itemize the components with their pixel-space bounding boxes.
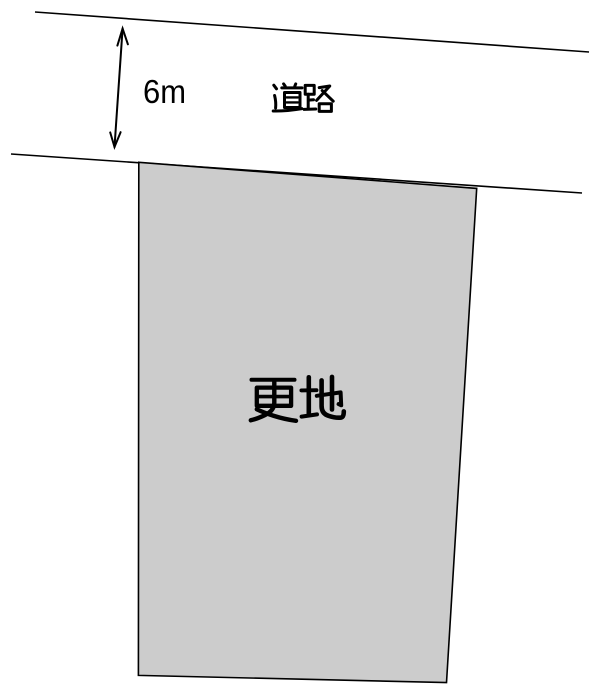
svg-text:6m: 6m xyxy=(143,73,186,110)
